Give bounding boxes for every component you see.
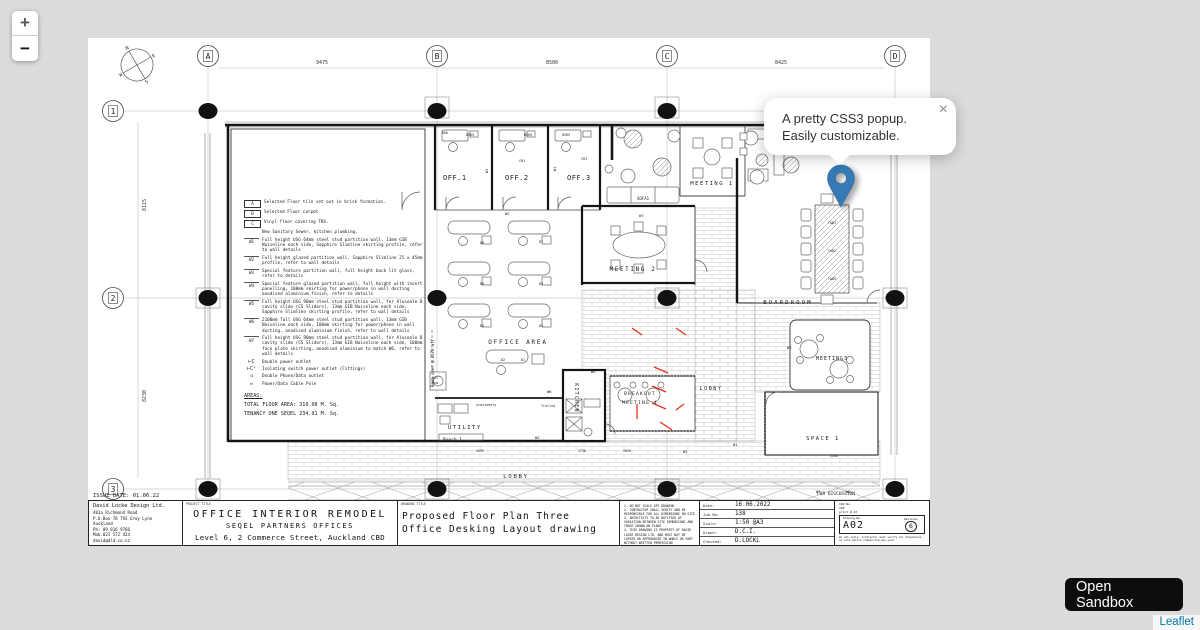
ceiling-brace-band [288,482,880,500]
meta-value: D.C.I. [735,529,756,535]
general-notes: 1. DO NOT SCALE OFF DRAWING2. CONTRACTOR… [620,501,700,545]
project-label: PROJECT TITLE [186,502,211,506]
plan-label: Bench 1 [443,437,462,443]
popup-close-icon[interactable]: × [939,102,948,118]
legend-row: W2Full height glazed partition wall, Sap… [244,256,424,267]
plan-label: W1 [484,168,489,173]
meta-value: D.LOCKL [735,538,760,544]
svg-text:S: S [144,79,150,86]
legend-text: Power/Data Cable Pole [262,382,424,387]
legend-row: BSelected Floor carpet [244,210,424,218]
legend-row: W62100mm Tall USG 64mm steel stud partit… [244,318,424,334]
grid-dimension: 9475 [316,60,328,66]
legend-symbol: ▭ [244,382,259,387]
tenancy-area: TENANCY ONE SEQEL 234.91 M. Sq. [244,410,424,419]
attribution-bar: Leaflet [1153,615,1200,630]
plan-label: OFF.2 [505,174,529,182]
legend-symbol: W3 [244,269,259,276]
legend-text: Vinyl floor covering TBS. [264,220,424,225]
plan-label: W5 [591,369,596,374]
plan-label: W1 [733,442,738,447]
plan-label: W7 [639,213,644,218]
meta-label: Job No: [703,512,735,517]
legend-text: New Sanitary Sewer, kitchen plumbing. [262,230,424,235]
legend-symbol: W7 [244,336,259,343]
plan-label: W2 [505,211,510,216]
legend-row: W4Special feature glazed partition wall,… [244,282,424,298]
plan-label: D4 [480,324,484,328]
plan-label: SPACE 1 [806,436,840,442]
plan-label: W6 [547,389,552,394]
legend-row: New Sanitary Sewer, kitchen plumbing. [244,230,424,235]
plan-label: W2 [846,489,851,494]
plan-label: MEETING 1 [690,181,733,187]
plan-label: BREAKOUT [624,391,656,397]
plan-label: Pod [432,381,438,385]
legend-text: Double Phone/Data outlet [262,374,424,379]
legend-symbol: B [244,210,261,218]
compass-rose: NESW [108,38,166,95]
legend-symbol: W1 [244,238,259,245]
plan-label: stationery [476,403,496,407]
plan-label: DSK5 [466,133,474,137]
legend-symbol: W5 [244,300,259,307]
map-popup: × A pretty CSS3 popup. Easily customizab… [764,98,956,155]
plan-label: BOARDROOM [763,300,813,306]
meta-label: Checked: [703,539,735,544]
zoom-in-button[interactable]: + [12,11,38,36]
grid-bubble-label: A [206,52,211,61]
title-block: David Locke Design Ltd. 401a Richmond Ro… [88,500,930,546]
legend-text: 2100mm Tall USG 64mm steel stud partitio… [262,318,424,334]
plan-label: D5 [539,282,543,286]
legend-text: Selected Floor tile set out in brick for… [264,200,424,205]
legend-symbol: ⊢Cˢ [244,367,259,372]
map-canvas[interactable]: NESW ABCD12394758500842581158230 OFF.1OF… [0,0,1200,630]
project-address: Level 6, 2 Commerce Street, Auckland CBD [187,533,393,542]
legend-row: CVinyl floor covering TBS. [244,220,424,228]
drawing-title-line2: Office Desking Layout drawing [402,523,615,536]
plan-label: OFF.3 [567,174,591,182]
plan-areas: AREAS: TOTAL FLOOR AREA: 310.08 M. Sq. T… [244,392,424,418]
plan-label: OFFICE AREA [488,339,548,346]
plan-label: UTILITY [448,425,482,431]
plan-label: D8 [480,282,484,286]
drawing-title-block: DRAWING TITLE Proposed Floor Plan Three … [398,501,620,545]
plan-label: SOFA1 [637,196,650,201]
drawing-label: DRAWING TITLE [401,502,426,506]
legend-symbol: ⊢C [244,360,259,365]
plan-label: CH1 [519,159,525,163]
fine-print: Do not scale. Contractor must verify all… [839,536,925,542]
meta-label: Scale: [703,521,735,526]
plan-label: LOBBY [699,386,722,392]
grid-bubble-label: D [893,52,898,61]
open-sandbox-button[interactable]: Open Sandbox [1065,578,1183,611]
plan-label: D6 [480,241,484,245]
drawing-meta: Date:16.06.2022Job No:138Scale:1:50 @A3D… [700,501,835,545]
map-marker-icon[interactable] [826,164,856,209]
plan-label: W1 [816,489,821,494]
grid-bubble-label: 1 [111,107,116,116]
plan-label: D7 [539,240,543,244]
designer-line: david@dld.co.nz [93,538,178,544]
plan-label: W2 [535,435,540,440]
legend-symbol: W2 [244,256,259,263]
meta-row: Date:16.06.2022 [700,501,834,510]
plan-label: 4495 [476,449,484,453]
meta-value: 16.06.2022 [735,502,770,508]
plan-label: TAB3 [828,277,836,281]
project-block: PROJECT TITLE OFFICE INTERIOR REMODEL SE… [183,501,398,545]
plan-label: LOBBY [503,474,529,480]
plan-label: W2 [787,345,792,350]
legend-row: ▭Power/Data Cable Pole [244,382,424,387]
meta-label: Date: [703,503,735,508]
revision-number: 6 [905,521,917,533]
legend-text: Full height glazed partition wall, Sapph… [262,256,424,267]
drawing-title-line1: Proposed Floor Plan Three [402,510,615,523]
grid-dimension: 8115 [142,199,148,211]
legend-text: Selected Floor carpet [264,210,424,215]
plan-label: Trolley [541,404,555,408]
zoom-out-button[interactable]: − [12,36,38,61]
legend-row: W7Full height USG 90mm steel stud partit… [244,336,424,357]
plan-label: ISSUE DATE: 01.06.22 [93,493,159,499]
areas-title: AREAS: [244,392,424,401]
general-note: 3. ARCHITECTS TO BE NOTIFIED OF VARIATIO… [624,516,695,528]
general-note: 4. THIS DRAWING IS PROPERTY OF DAVID LOC… [624,528,695,544]
plan-label: D3 [539,324,543,328]
zoom-control: + − [12,11,38,61]
designer-block: David Locke Design Ltd. 401a Richmond Ro… [88,501,183,545]
plan-label: KITCHEN [573,383,579,412]
legend-row: W3Special feature partition wall, full h… [244,269,424,280]
legend-row: W1Full height USG 64mm steel stud partit… [244,238,424,254]
plan-label: 2440 [830,454,838,458]
plan-label: 1730 [578,449,586,453]
plan-label: OFF.1 [443,174,467,182]
popup-line-1: A pretty CSS3 popup. [782,110,938,127]
plan-label: W2 [683,449,688,454]
legend-symbol: C [244,220,261,228]
project-title: OFFICE INTERIOR REMODEL [187,509,393,520]
meta-value: 1:50 @A3 [735,520,763,526]
grid-bubble-label: 2 [111,294,116,303]
grid-dimension: 8500 [546,60,558,66]
plan-label: CH1 [581,157,587,161]
legend-symbol: W4 [244,282,259,289]
plan-label: MEETING 2 [610,266,657,273]
plan-label: DSK5 [562,133,570,137]
grid-bubble-label: C [665,52,670,61]
meta-value: 138 [735,511,746,517]
cad-line: print @ A3 [839,511,925,515]
grid-dimension: 8425 [775,60,787,66]
popup-line-2: Easily customizable. [782,127,938,144]
legend-symbol: W6 [244,318,259,325]
meta-label: Drawn: [703,530,735,535]
plan-label: Cal [432,376,438,380]
legend-text: Isolating switch power outlet (Fittings) [262,367,424,372]
plan-label: TAB2 [828,249,836,253]
grid-dimension: 8230 [142,390,148,402]
drawing-number: A02 [843,520,864,531]
meta-row: Drawn:D.C.I. [700,528,834,537]
plan-label: DSK5 [524,133,532,137]
total-floor-area: TOTAL FLOOR AREA: 310.08 M. Sq. [244,401,424,410]
plan-label: TAB1 [828,221,836,225]
leaflet-attribution-link[interactable]: Leaflet [1159,616,1194,628]
plan-label: 2020 [623,449,631,453]
plan-label: D1 [521,358,525,362]
legend-symbol: A [244,200,261,208]
meta-row: Checked:D.LOCKL [700,537,834,545]
legend-row: W5Full height USG 90mm steel stud partit… [244,300,424,316]
designer-name: David Locke Design Ltd. [93,503,178,509]
legend-row: ◁Double Phone/Data outlet [244,374,424,379]
legend-text: Full height USG 90mm steel stud partitio… [262,336,424,357]
meta-row: Job No:138 [700,510,834,519]
legend-row: ⊢CDouble power outlet [244,360,424,365]
legend-row: ⊢CˢIsolating switch power outlet (Fittin… [244,367,424,372]
legend-text: Full height USG 64mm steel stud partitio… [262,238,424,254]
grid-bubble-label: B [435,52,440,61]
legend-text: Double power outlet [262,360,424,365]
legend-row: ASelected Floor tile set out in brick fo… [244,200,424,208]
meta-row: Scale:1:50 @A3 [700,519,834,528]
plan-legend: ASelected Floor tile set out in brick fo… [244,200,424,452]
general-note: 2. CONTRACTOR SHALL VERIFY AND BE RESPON… [624,508,695,516]
plan-label: D2 [501,358,505,362]
plan-label: MEETING3 [816,356,848,362]
drawing-number-block: CAD No.138print @ A3 Drawing No. A02 Rev… [835,501,930,545]
project-subtitle: SEQEL PARTNERS OFFICES [187,522,393,530]
legend-text: Full height USG 90mm steel stud partitio… [262,300,424,316]
legend-text: Special feature glazed partition wall, f… [262,282,424,298]
legend-text: Special feature partition wall, full hei… [262,269,424,280]
plan-label: 800 [442,131,448,135]
legend-symbol: ◁ [244,374,259,379]
plan-label: W1 [552,166,557,171]
